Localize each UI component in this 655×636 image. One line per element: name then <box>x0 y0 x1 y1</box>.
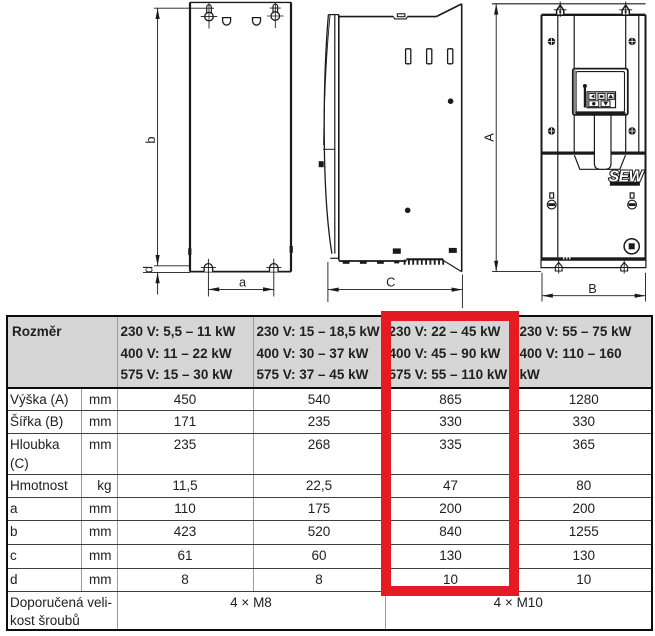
svg-text:d: d <box>141 266 156 273</box>
svg-text:a: a <box>239 275 247 290</box>
svg-text:C: C <box>386 275 395 290</box>
svg-text:b: b <box>143 136 158 143</box>
svg-text:B: B <box>588 281 597 296</box>
svg-text:A: A <box>481 133 496 142</box>
